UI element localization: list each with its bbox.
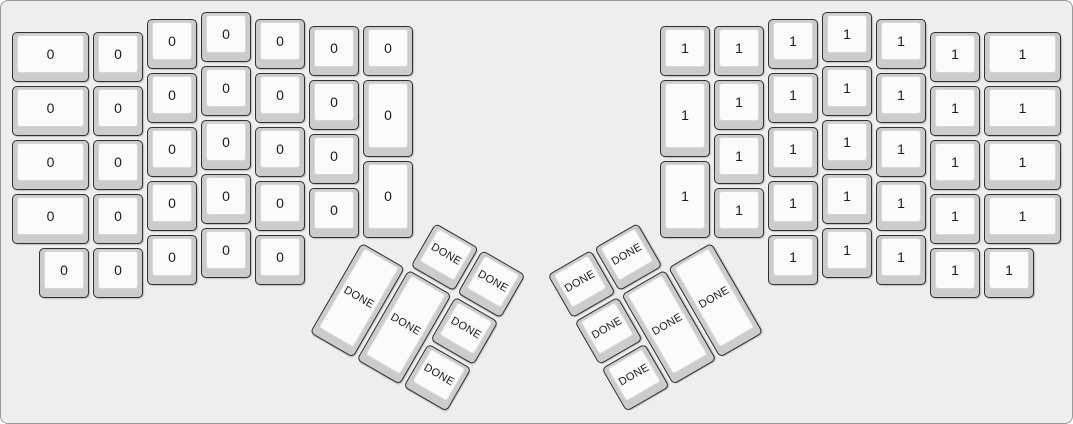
keycap-left-main[interactable]: 0 xyxy=(147,19,197,69)
keycap-right-main[interactable]: 1 xyxy=(930,86,980,136)
keycap-right-main[interactable]: 1 xyxy=(714,80,764,130)
keycap-left-main[interactable]: 0 xyxy=(309,80,359,130)
keycap-face: 0 xyxy=(152,130,192,168)
keycap-left-main[interactable]: 0 xyxy=(309,134,359,184)
keycap-legend: DONE xyxy=(650,311,684,337)
keycap-legend: 0 xyxy=(114,155,122,169)
keycap-left-main[interactable]: 0 xyxy=(201,120,251,170)
keycap-right-main[interactable]: 1 xyxy=(660,161,710,238)
keycap-legend: 0 xyxy=(384,108,392,122)
keycap-face: 0 xyxy=(44,251,84,289)
keycap-legend: 1 xyxy=(681,41,689,55)
keycap-legend: DONE xyxy=(342,284,376,310)
keycap-legend: 1 xyxy=(951,155,959,169)
keycap-face: 1 xyxy=(665,164,705,229)
keycap-legend: DONE xyxy=(422,362,456,388)
keycap-legend: 0 xyxy=(222,189,230,203)
keycap-legend: 1 xyxy=(681,108,689,122)
keycap-legend: 1 xyxy=(789,196,797,210)
keycap-legend: 0 xyxy=(168,34,176,48)
keycap-legend: DONE xyxy=(563,268,597,294)
keycap-left-main[interactable]: 0 xyxy=(255,19,305,69)
keycap-face: 0 xyxy=(206,69,246,107)
keycap-right-main[interactable]: 1 xyxy=(876,19,926,69)
keycap-legend: 1 xyxy=(789,34,797,48)
keycap-legend: 1 xyxy=(789,142,797,156)
keycap-face: 1 xyxy=(935,143,975,181)
keycap-legend: 0 xyxy=(222,81,230,95)
keycap-left-main[interactable]: 0 xyxy=(147,127,197,177)
keycap-right-main[interactable]: 1 xyxy=(876,181,926,231)
keycap-legend: 0 xyxy=(114,209,122,223)
keycap-right-main[interactable]: 1 xyxy=(822,120,872,170)
keycap-legend: 0 xyxy=(330,95,338,109)
keycap-legend: 0 xyxy=(222,135,230,149)
keycap-legend: 1 xyxy=(897,196,905,210)
keycap-face: 1 xyxy=(881,130,921,168)
keycap-face: 1 xyxy=(773,22,813,60)
keycap-face: 1 xyxy=(881,184,921,222)
keycap-left-main[interactable]: 0 xyxy=(255,127,305,177)
keycap-legend: 0 xyxy=(168,88,176,102)
keycap-legend: 0 xyxy=(114,101,122,115)
keycap-legend: 1 xyxy=(1005,263,1013,277)
keycap-face: 0 xyxy=(152,238,192,276)
keycap-legend: 1 xyxy=(897,250,905,264)
keycap-face: 1 xyxy=(827,15,867,53)
keycap-face: 1 xyxy=(827,231,867,269)
keycap-right-main[interactable]: 1 xyxy=(930,32,980,82)
keycap-legend: 1 xyxy=(951,209,959,223)
keycap-legend: 0 xyxy=(168,250,176,264)
keycap-face: 0 xyxy=(17,35,84,73)
keycap-legend: 1 xyxy=(1019,47,1027,61)
keycap-face: 1 xyxy=(773,184,813,222)
keycap-right-main[interactable]: 1 xyxy=(822,66,872,116)
keycap-face: 0 xyxy=(98,35,138,73)
keycap-left-main[interactable]: 0 xyxy=(363,161,413,238)
keycap-face: 1 xyxy=(827,123,867,161)
keycap-right-main[interactable]: 1 xyxy=(660,26,710,76)
keycap-face: 1 xyxy=(827,177,867,215)
keycap-left-main[interactable]: 0 xyxy=(309,26,359,76)
keycap-right-main[interactable]: 1 xyxy=(984,140,1061,190)
keycap-right-main[interactable]: 1 xyxy=(714,134,764,184)
keycap-left-main[interactable]: 0 xyxy=(12,86,89,136)
keycap-face: 0 xyxy=(260,76,300,114)
keycap-legend: 0 xyxy=(276,34,284,48)
keycap-face: 1 xyxy=(935,251,975,289)
keycap-face: DONE xyxy=(607,348,661,401)
keycap-legend: 0 xyxy=(384,189,392,203)
keyboard-canvas: 0000000000000000000000000000000011111111… xyxy=(0,0,1073,424)
keycap-left-main[interactable]: 0 xyxy=(93,248,143,298)
keycap-right-main[interactable]: 1 xyxy=(984,86,1061,136)
keycap-right-main[interactable]: 1 xyxy=(822,228,872,278)
keycap-legend: 0 xyxy=(168,196,176,210)
keycap-right-main[interactable]: 1 xyxy=(930,140,980,190)
keycap-face: 1 xyxy=(881,238,921,276)
keycap-right-main[interactable]: 1 xyxy=(768,127,818,177)
keycap-legend: 1 xyxy=(1019,101,1027,115)
keycap-left-main[interactable]: 0 xyxy=(201,174,251,224)
keycap-legend: 1 xyxy=(735,149,743,163)
keycap-face: 1 xyxy=(773,238,813,276)
keycap-right-main[interactable]: 1 xyxy=(768,19,818,69)
keycap-legend: DONE xyxy=(610,241,644,267)
keycap-legend: DONE xyxy=(449,315,483,341)
keycap-face: 0 xyxy=(98,89,138,127)
keycap-legend: 1 xyxy=(1019,209,1027,223)
keycap-right-main[interactable]: 1 xyxy=(714,26,764,76)
keycap-legend: 0 xyxy=(47,47,55,61)
keycap-face: 0 xyxy=(206,177,246,215)
keycap-legend: 1 xyxy=(951,47,959,61)
keycap-face: DONE xyxy=(600,228,654,281)
keycap-face: 0 xyxy=(17,197,84,235)
keycap-face: 0 xyxy=(17,89,84,127)
keycap-right-main[interactable]: 1 xyxy=(930,248,980,298)
keycap-legend: 1 xyxy=(897,88,905,102)
keycap-right-main[interactable]: 1 xyxy=(984,32,1061,82)
keycap-legend: 0 xyxy=(384,41,392,55)
keycap-legend: 1 xyxy=(789,250,797,264)
keycap-legend: 0 xyxy=(330,149,338,163)
keycap-legend: 1 xyxy=(951,263,959,277)
keycap-legend: DONE xyxy=(476,268,510,294)
keycap-face: 1 xyxy=(773,76,813,114)
keycap-left-main[interactable]: 0 xyxy=(147,181,197,231)
keycap-legend: 0 xyxy=(114,263,122,277)
keycap-legend: 0 xyxy=(330,203,338,217)
keycap-left-main[interactable]: 0 xyxy=(12,140,89,190)
keycap-face: 1 xyxy=(719,191,759,229)
keycap-face: 1 xyxy=(665,29,705,67)
keycap-face: 0 xyxy=(368,164,408,229)
keycap-face: 0 xyxy=(17,143,84,181)
keycap-face: 1 xyxy=(719,83,759,121)
keycap-right-main[interactable]: 1 xyxy=(876,73,926,123)
keycap-face: 0 xyxy=(260,238,300,276)
keycap-face: 1 xyxy=(719,29,759,67)
keycap-left-main[interactable]: 0 xyxy=(39,248,89,298)
keycap-face: DONE xyxy=(466,255,520,308)
keycap-legend: 1 xyxy=(843,27,851,41)
keycap-face: DONE xyxy=(580,301,634,354)
keycap-face: 1 xyxy=(935,197,975,235)
keycap-face: 1 xyxy=(935,89,975,127)
keycap-legend: 0 xyxy=(276,88,284,102)
keycap-left-main[interactable]: 0 xyxy=(201,228,251,278)
keycap-face: 0 xyxy=(368,83,408,148)
keycap-legend: 0 xyxy=(47,209,55,223)
keycap-right-main[interactable]: 1 xyxy=(714,188,764,238)
keycap-legend: 1 xyxy=(1019,155,1027,169)
keycap-face: 0 xyxy=(98,197,138,235)
keycap-legend: 0 xyxy=(276,142,284,156)
keycap-left-main[interactable]: 0 xyxy=(363,80,413,157)
keycap-legend: 0 xyxy=(114,47,122,61)
keycap-face: 0 xyxy=(206,231,246,269)
keycap-legend: 1 xyxy=(843,189,851,203)
keycap-left-main[interactable]: 0 xyxy=(93,32,143,82)
keycap-right-main[interactable]: 1 xyxy=(984,194,1061,244)
keycap-legend: 0 xyxy=(222,27,230,41)
keycap-face: 0 xyxy=(314,83,354,121)
keycap-right-main[interactable]: 1 xyxy=(822,174,872,224)
keycap-legend: 0 xyxy=(276,250,284,264)
keycap-face: 1 xyxy=(989,89,1056,127)
keycap-left-main[interactable]: 0 xyxy=(255,235,305,285)
keycap-legend: 1 xyxy=(897,34,905,48)
keycap-face: 0 xyxy=(152,184,192,222)
keycap-face: 1 xyxy=(665,83,705,148)
keycap-face: 0 xyxy=(260,22,300,60)
keycap-legend: 0 xyxy=(60,263,68,277)
keycap-right-main[interactable]: 1 xyxy=(768,235,818,285)
keycap-left-main[interactable]: 0 xyxy=(93,86,143,136)
keycap-left-main[interactable]: 0 xyxy=(363,26,413,76)
keycap-legend: 1 xyxy=(789,88,797,102)
keycap-legend: 1 xyxy=(897,142,905,156)
keycap-right-main[interactable]: 1 xyxy=(768,181,818,231)
keycap-right-main[interactable]: 1 xyxy=(822,12,872,62)
keycap-face: 1 xyxy=(989,197,1056,235)
keycap-face: 1 xyxy=(881,22,921,60)
keycap-legend: 0 xyxy=(168,142,176,156)
keycap-right-main[interactable]: 1 xyxy=(876,127,926,177)
keycap-legend: 0 xyxy=(47,101,55,115)
keycap-face: 0 xyxy=(314,29,354,67)
keycap-legend: 0 xyxy=(276,196,284,210)
keycap-right-main[interactable]: 1 xyxy=(984,248,1034,298)
keycap-left-main[interactable]: 0 xyxy=(12,194,89,244)
keycap-legend: 1 xyxy=(681,189,689,203)
keycap-left-main[interactable]: 0 xyxy=(201,66,251,116)
keycap-face: DONE xyxy=(419,228,473,281)
keycap-left-main[interactable]: 0 xyxy=(93,194,143,244)
keycap-face: DONE xyxy=(553,255,607,308)
keycap-face: 0 xyxy=(152,22,192,60)
keycap-face: 1 xyxy=(989,35,1056,73)
keycap-legend: 0 xyxy=(47,155,55,169)
keycap-legend: 1 xyxy=(843,243,851,257)
keycap-left-main[interactable]: 0 xyxy=(255,181,305,231)
keycap-face: 0 xyxy=(206,123,246,161)
keycap-legend: DONE xyxy=(590,315,624,341)
keycap-face: 1 xyxy=(773,130,813,168)
keycap-face: 0 xyxy=(206,15,246,53)
keycap-legend: DONE xyxy=(429,241,463,267)
keycap-face: 0 xyxy=(314,137,354,175)
keycap-legend: 1 xyxy=(843,81,851,95)
keycap-face: 1 xyxy=(989,143,1056,181)
keycap-legend: DONE xyxy=(389,311,423,337)
keycap-face: 0 xyxy=(314,191,354,229)
keycap-legend: 1 xyxy=(951,101,959,115)
keycap-face: 1 xyxy=(719,137,759,175)
keycap-right-main[interactable]: 1 xyxy=(930,194,980,244)
keycap-legend: 1 xyxy=(735,95,743,109)
keycap-face: 0 xyxy=(98,251,138,289)
keycap-left-main[interactable]: 0 xyxy=(93,140,143,190)
keycap-legend: DONE xyxy=(617,362,651,388)
keycap-face: 0 xyxy=(98,143,138,181)
keycap-left-main[interactable]: 0 xyxy=(147,73,197,123)
keycap-left-main[interactable]: 0 xyxy=(201,12,251,62)
keycap-left-main[interactable]: 0 xyxy=(309,188,359,238)
keycap-face: 0 xyxy=(368,29,408,67)
keycap-right-main[interactable]: 1 xyxy=(768,73,818,123)
keycap-right-main[interactable]: 1 xyxy=(660,80,710,157)
keycap-legend: 0 xyxy=(330,41,338,55)
keycap-face: 1 xyxy=(827,69,867,107)
keycap-right-main[interactable]: 1 xyxy=(876,235,926,285)
keycap-face: 0 xyxy=(152,76,192,114)
keycap-legend: DONE xyxy=(697,284,731,310)
keycap-face: 1 xyxy=(935,35,975,73)
keycap-legend: 1 xyxy=(735,203,743,217)
keycap-face: 0 xyxy=(260,184,300,222)
keycap-face: 1 xyxy=(881,76,921,114)
keycap-left-main[interactable]: 0 xyxy=(12,32,89,82)
keycap-left-main[interactable]: 0 xyxy=(255,73,305,123)
keycap-face: 0 xyxy=(260,130,300,168)
keycap-legend: 0 xyxy=(222,243,230,257)
keycap-legend: 1 xyxy=(843,135,851,149)
keycap-left-main[interactable]: 0 xyxy=(147,235,197,285)
keycap-face: 1 xyxy=(989,251,1029,289)
keycap-legend: 1 xyxy=(735,41,743,55)
